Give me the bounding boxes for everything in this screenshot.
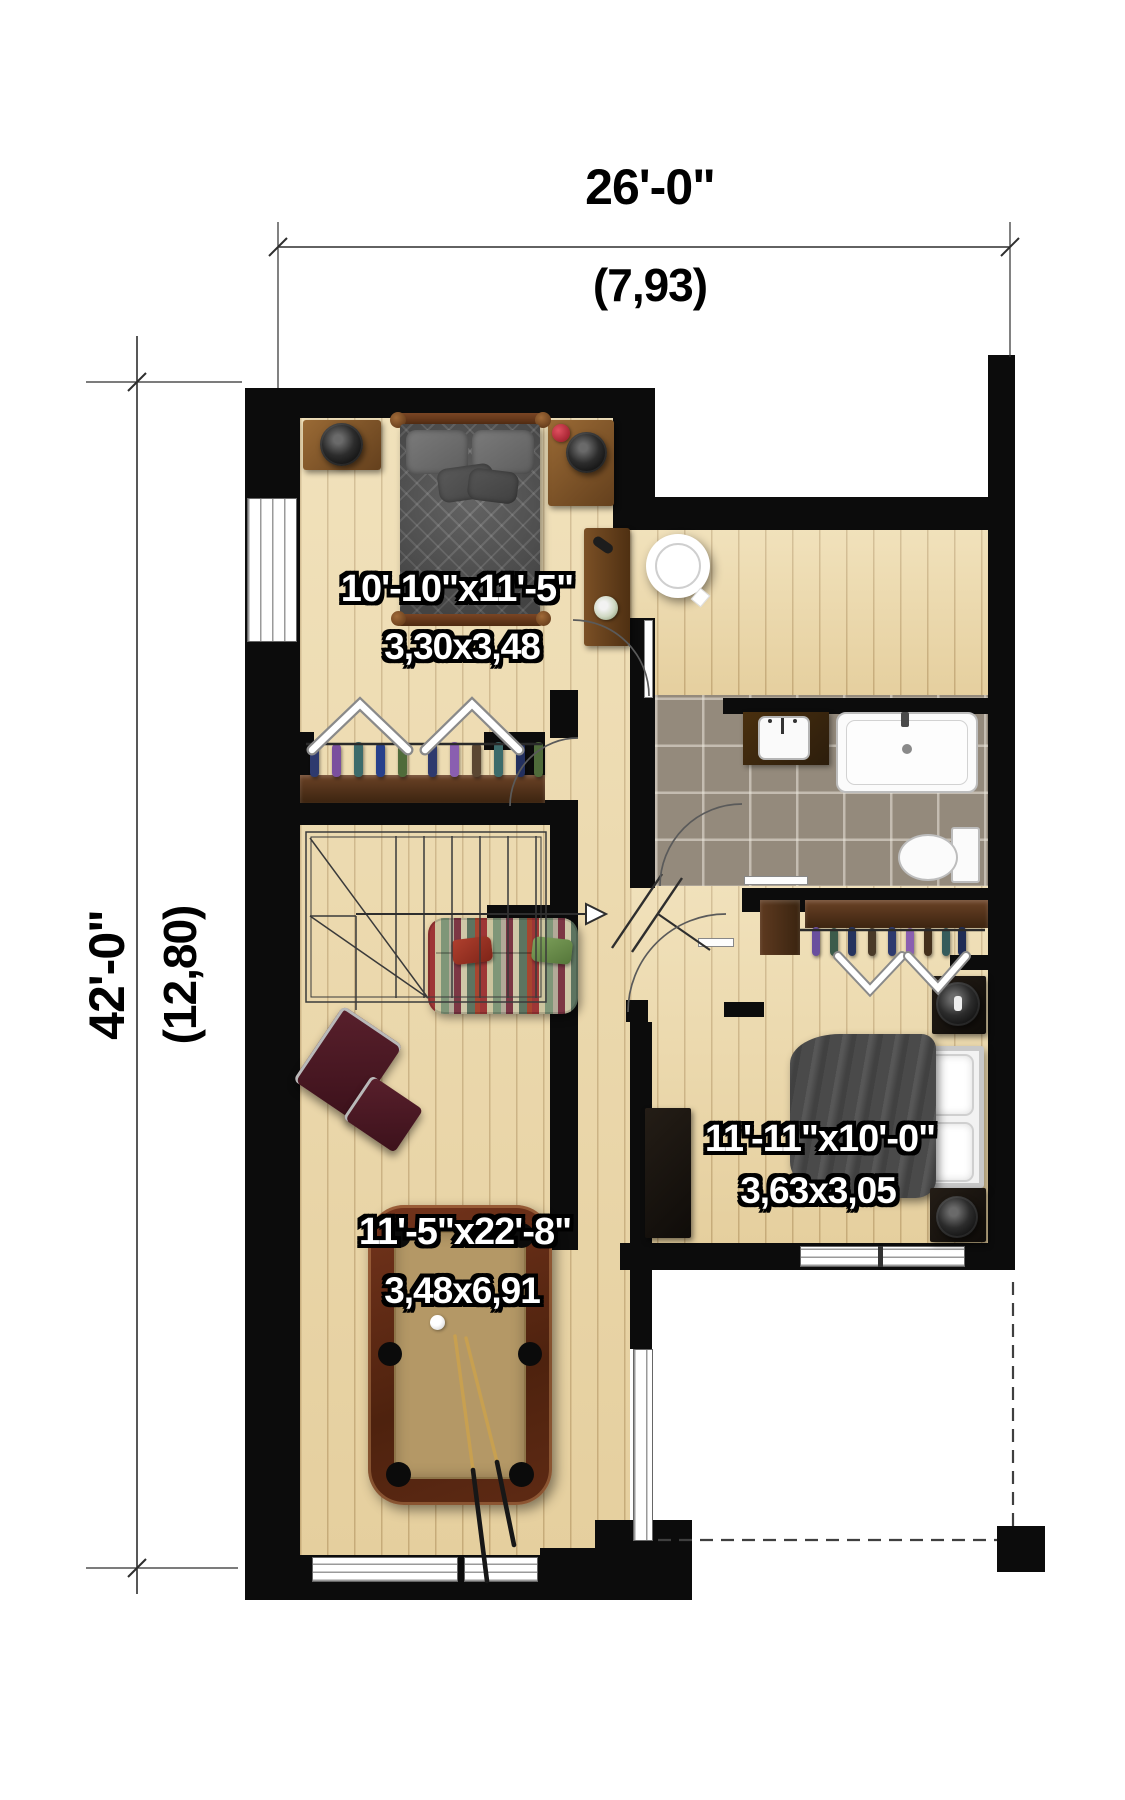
vanity-sink: [758, 716, 810, 760]
table-lamp: [936, 1196, 978, 1238]
flower-pot: [594, 596, 618, 620]
family-room-size-meters: 3,48x6,91: [384, 1270, 540, 1312]
pool-pocket: [386, 1462, 411, 1487]
roof-post: [997, 1526, 1045, 1572]
clothes-item: [472, 743, 481, 777]
table-lamp: [566, 432, 607, 473]
clothes-item: [310, 742, 319, 777]
sink-handle: [768, 719, 772, 723]
clothes-item: [868, 928, 876, 956]
closet-shelf: [805, 900, 988, 928]
wall-right: [988, 530, 1015, 1270]
door-leaf-bedroom1: [644, 620, 653, 698]
bed-post: [536, 611, 551, 626]
clothes-item: [534, 742, 543, 777]
bed-footboard: [395, 614, 545, 626]
family-room-size-feet: 11'-5"x22'-8": [359, 1211, 571, 1254]
bathtub-drain: [902, 744, 912, 754]
clothes-item: [942, 928, 950, 956]
clothes-item: [428, 743, 437, 777]
cue-ball: [430, 1315, 445, 1330]
clothes-item: [398, 742, 407, 777]
bedroom-top-size-feet: 10'-10"x11'-5": [341, 568, 573, 611]
clothes-item: [888, 927, 896, 956]
wall-closet1-bottom: [245, 800, 578, 825]
dimension-top-feet: 26'-0": [585, 158, 715, 216]
window-bedroom2-mullion: [878, 1246, 883, 1267]
wall-bedroom2-door-stub-right: [724, 1002, 764, 1017]
bed-accent-pillow: [466, 467, 520, 505]
clothes-item: [848, 927, 856, 956]
clothes-item: [376, 743, 385, 777]
sofa-pillow: [531, 936, 573, 965]
window-bottom-1: [312, 1557, 458, 1582]
clothes-item: [450, 742, 459, 777]
pool-pocket: [518, 1342, 542, 1366]
pool-pocket: [378, 1342, 402, 1366]
clothes-item: [812, 927, 820, 956]
wall-corridor-upper: [550, 690, 578, 738]
roof-dashed-outline: [658, 1282, 1013, 1540]
dimension-side-meters: (12,80): [153, 906, 207, 1045]
clothes-item: [516, 743, 525, 777]
pool-pocket: [509, 1462, 534, 1487]
pool-table-felt: [394, 1231, 526, 1479]
dimension-side-feet: 42'-0": [78, 910, 136, 1040]
wall-hall-top: [618, 497, 1015, 530]
window-bottom-2: [464, 1557, 538, 1582]
clothes-item: [830, 928, 838, 956]
door-leaf-bedroom2: [698, 938, 734, 947]
table-lamp: [320, 423, 363, 466]
window-bedroom1-left: [247, 498, 297, 642]
sink-handle: [793, 719, 797, 723]
dimension-top-meters: (7,93): [593, 258, 707, 312]
desk: [645, 1108, 691, 1238]
sink-faucet: [781, 718, 784, 734]
closet-side-panel: [760, 900, 800, 955]
clothes-item: [332, 744, 341, 777]
sofa: [428, 918, 578, 1014]
closet-shelf: [300, 775, 545, 803]
sofa-pillow: [451, 936, 494, 966]
clothes-item: [924, 927, 932, 956]
patio-door-right: [633, 1349, 653, 1541]
toilet-bowl: [898, 834, 958, 881]
bathtub-faucet: [901, 712, 909, 727]
bedroom-top-size-meters: 3,30x3,48: [384, 626, 540, 668]
clothes-item: [958, 927, 966, 956]
clothes-item: [354, 742, 363, 777]
flower-vase: [552, 424, 570, 442]
door-leaf-bathroom: [744, 876, 808, 885]
clothes-item: [906, 928, 914, 956]
wall-bedroom2-door-stub-left: [626, 1000, 648, 1022]
wall-corridor-lower: [550, 806, 578, 1250]
floor-plan-page: { "dimensions": { "top": { "feet": "26'-…: [0, 0, 1125, 1800]
clothes-item: [494, 742, 503, 777]
ceiling-light-ring: [655, 543, 701, 589]
bed-post: [391, 611, 406, 626]
floor-plan: 26'-0" (7,93) 42'-0" (12,80) 10'-10"x11'…: [0, 0, 1125, 1800]
bedroom-right-size-meters: 3,63x3,05: [740, 1170, 896, 1212]
lamp-switch: [954, 996, 962, 1011]
wall-right-stub: [988, 355, 1015, 530]
bedroom-right-size-feet: 11'-11"x10'-0": [705, 1118, 935, 1161]
wall-closet2-stub: [950, 955, 988, 970]
